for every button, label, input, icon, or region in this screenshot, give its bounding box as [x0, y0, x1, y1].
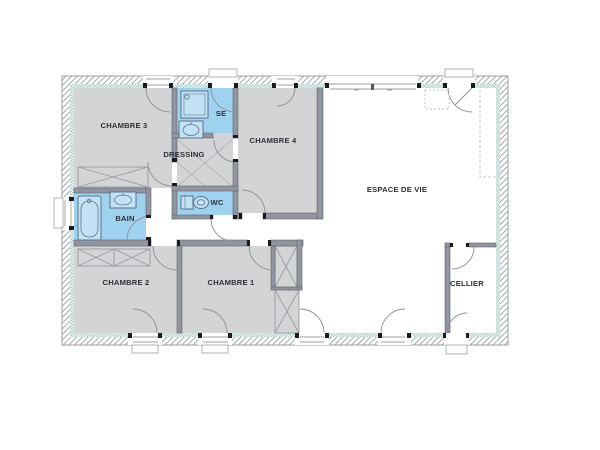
kitchen-zone-dashed — [480, 90, 496, 177]
se-door-threshold — [209, 69, 237, 77]
label-chambre3: CHAMBRE 3 — [101, 121, 148, 130]
entrance-mat-dashed — [425, 90, 449, 109]
wall-ch4-right — [317, 88, 323, 219]
bain-washbasin-icon — [110, 192, 136, 208]
label-wc: WC — [210, 198, 223, 207]
wall-closet-left — [271, 246, 275, 287]
wall-se-ch4 — [233, 88, 238, 138]
label-se: SE — [216, 109, 227, 118]
floor-plan: CHAMBRE 3 SE DRESSING CHAMBRE 4 BAIN WC … — [0, 0, 600, 450]
entrance-door-leaf — [455, 88, 472, 105]
wall-bain-right — [146, 188, 151, 215]
label-chambre1: CHAMBRE 1 — [208, 278, 256, 287]
closet-chambre3 — [78, 167, 148, 187]
wall-cellier-top-b — [469, 243, 496, 247]
label-bain: BAIN — [115, 214, 134, 223]
wall-closet-right — [297, 240, 302, 290]
french-door-2-cut — [378, 333, 411, 345]
door-cellier-cut — [444, 333, 469, 345]
window-chambre1-cut — [198, 333, 232, 345]
floor-plan-page: CHAMBRE 3 SE DRESSING CHAMBRE 4 BAIN WC … — [0, 0, 600, 450]
bain-window-sill — [54, 198, 63, 228]
se-washbasin-icon — [179, 121, 203, 138]
wall-cellier-top-a — [445, 243, 450, 247]
wall-dressing-wc — [172, 186, 238, 191]
label-espace-de-vie: ESPACE DE VIE — [367, 185, 427, 194]
chambre2-window-sill — [132, 345, 158, 353]
arc-french-door-2 — [381, 309, 405, 333]
wall-ch2-ch1 — [177, 246, 182, 333]
bay-window-mullion — [371, 84, 374, 90]
door-se-cut — [208, 76, 238, 88]
wall-closet-divider — [271, 287, 302, 290]
entrance-door-cut — [443, 76, 475, 88]
room-chambre4 — [238, 88, 317, 213]
french-door-1-cut — [295, 333, 329, 345]
cellier-door-threshold — [446, 345, 467, 354]
closet-chambre1-upper — [275, 246, 297, 287]
label-cellier: CELLIER — [450, 279, 484, 288]
shower-icon — [181, 91, 208, 118]
window-bain-cut — [62, 197, 74, 230]
window-chambre2-cut — [128, 333, 162, 345]
entrance-threshold — [445, 69, 473, 77]
wall-cellier-left — [445, 246, 450, 333]
arc-door-wc — [211, 219, 233, 241]
chambre1-window-sill — [202, 345, 228, 353]
closet-chambre2 — [78, 249, 150, 266]
bathtub-icon — [78, 196, 101, 240]
window-chambre3-cut — [143, 76, 173, 88]
dashed-annotations — [425, 90, 496, 177]
label-chambre4: CHAMBRE 4 — [250, 136, 298, 145]
closet-chambre1-lower — [275, 290, 299, 333]
wall-bedrooms-top-a — [74, 240, 151, 246]
arc-french-door-1 — [300, 309, 324, 333]
label-dressing: DRESSING — [163, 150, 204, 159]
wall-wc-bottom — [172, 215, 213, 219]
room-dressing — [177, 133, 233, 191]
label-chambre2: CHAMBRE 2 — [103, 278, 150, 287]
wall-ch4-bottom-b — [263, 213, 322, 219]
wall-bedrooms-top-b — [177, 240, 247, 246]
arc-door-cellier-top — [452, 247, 474, 269]
